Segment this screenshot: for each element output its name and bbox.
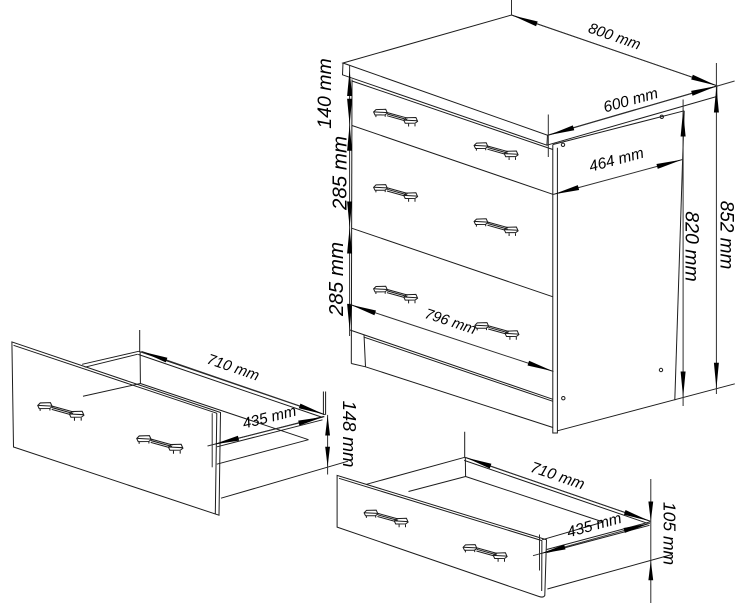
- svg-text:852 mm: 852 mm: [716, 201, 737, 270]
- svg-text:105 mm: 105 mm: [660, 502, 680, 565]
- svg-text:285 mm: 285 mm: [325, 242, 348, 317]
- svg-text:285 mm: 285 mm: [329, 136, 352, 211]
- svg-text:148 mm: 148 mm: [339, 401, 360, 468]
- svg-text:820 mm: 820 mm: [681, 211, 703, 281]
- svg-text:140 mm: 140 mm: [314, 58, 336, 128]
